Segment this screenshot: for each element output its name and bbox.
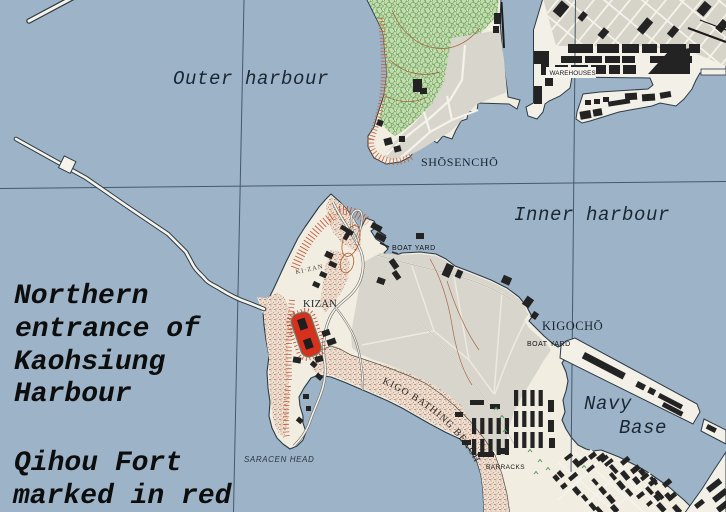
svg-text:KIZAN: KIZAN	[303, 299, 337, 310]
svg-text:Base: Base	[619, 417, 667, 439]
svg-text:Northern: Northern	[14, 281, 148, 312]
svg-text:Outer harbour: Outer harbour	[173, 68, 329, 90]
svg-text:Harbour: Harbour	[14, 379, 132, 410]
svg-text:BOAT YARD: BOAT YARD	[392, 245, 436, 252]
svg-text:KIGOCHŌ: KIGOCHŌ	[542, 319, 603, 333]
svg-text:SARACEN HEAD: SARACEN HEAD	[244, 455, 314, 464]
svg-text:Navy: Navy	[584, 393, 632, 415]
svg-text:Inner harbour: Inner harbour	[514, 204, 670, 226]
svg-text:SHŌSENCHŌ: SHŌSENCHŌ	[421, 155, 498, 169]
svg-text:marked in red: marked in red	[12, 481, 233, 512]
svg-text:BARRACKS: BARRACKS	[486, 464, 525, 471]
svg-text:entrance of: entrance of	[15, 314, 201, 345]
svg-text:BOAT YARD: BOAT YARD	[527, 341, 571, 348]
svg-text:Kaohsiung: Kaohsiung	[14, 347, 165, 378]
svg-text:Qihou Fort: Qihou Fort	[14, 448, 182, 479]
svg-text:WAREHOUSES: WAREHOUSES	[550, 70, 596, 77]
